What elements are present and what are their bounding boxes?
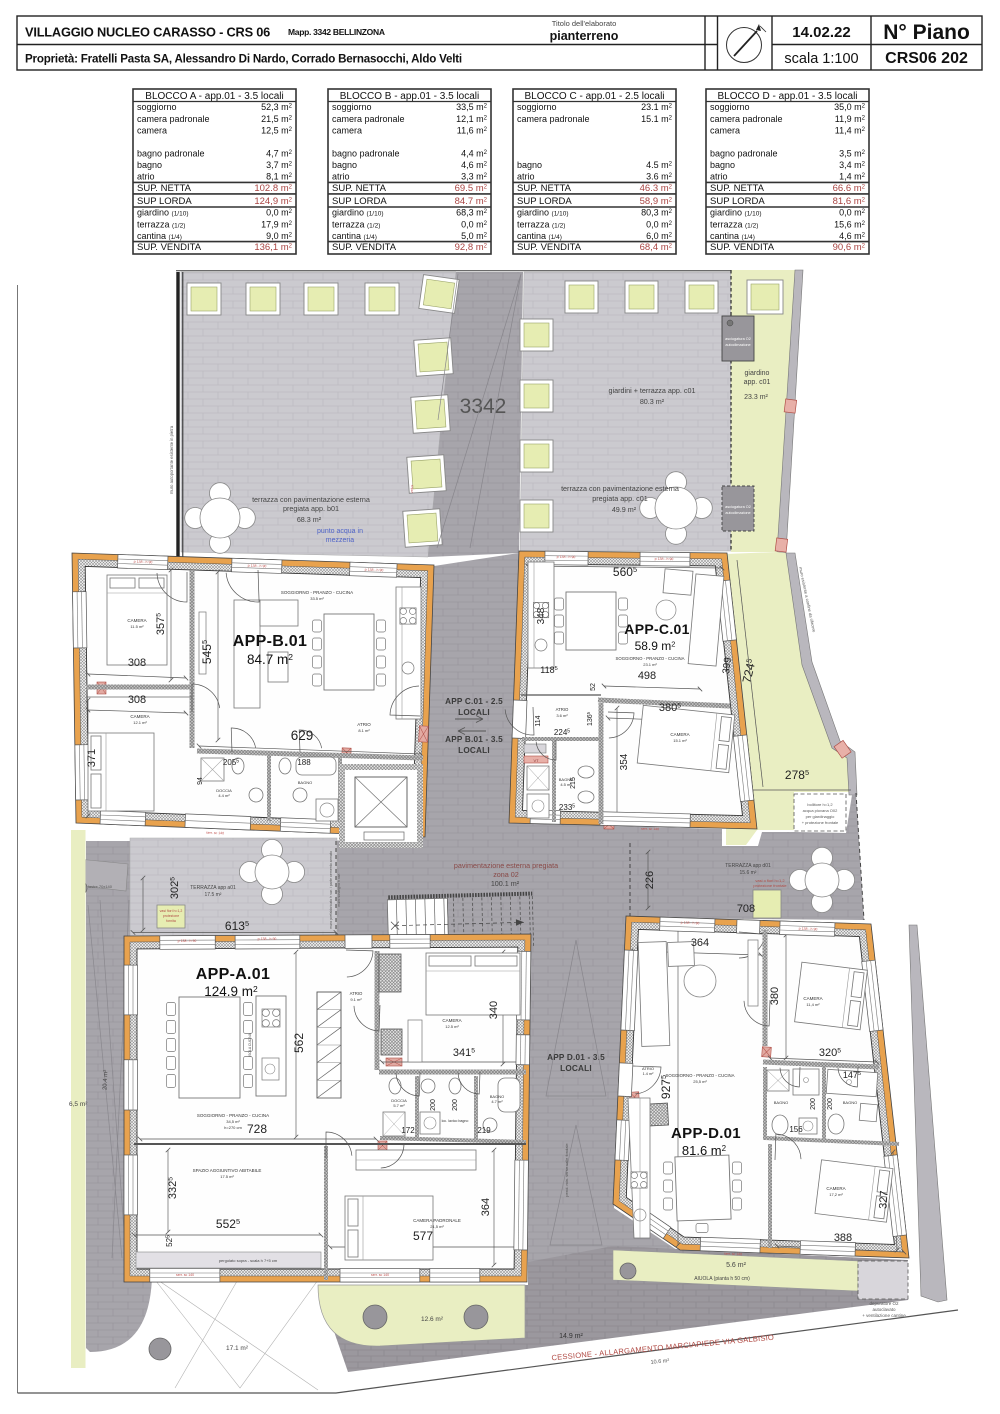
svg-text:SUP. VENDITA: SUP. VENDITA	[710, 242, 775, 253]
svg-text:terrazza con pavimentazione es: terrazza con pavimentazione esterna	[561, 484, 679, 493]
svg-text:Mapp. 3342 BELLINZONA: Mapp. 3342 BELLINZONA	[288, 27, 385, 37]
svg-text:90,6 m2: 90,6 m2	[833, 242, 866, 253]
svg-text:23.3 m²: 23.3 m²	[744, 394, 768, 401]
svg-text:p 138 - h 90: p 138 - h 90	[134, 560, 153, 565]
svg-text:114: 114	[535, 715, 542, 726]
svg-text:camera: camera	[710, 125, 740, 135]
svg-text:308: 308	[128, 657, 146, 669]
svg-text:81,6 m2: 81,6 m2	[833, 196, 866, 207]
svg-text:h=270 cm: h=270 cm	[224, 1125, 242, 1130]
svg-text:N° Piano: N° Piano	[883, 21, 970, 44]
svg-text:SUP LORDA: SUP LORDA	[137, 196, 192, 207]
svg-text:20.4 m²: 20.4 m²	[102, 1070, 109, 1091]
svg-text:pregiata app. b01: pregiata app. b01	[283, 504, 339, 513]
svg-text:lastre 70x140: lastre 70x140	[88, 884, 113, 889]
svg-text:49.9 m²: 49.9 m²	[612, 505, 637, 514]
svg-text:69.5 m2: 69.5 m2	[455, 183, 488, 194]
svg-text:soggiorno: soggiorno	[332, 102, 372, 112]
svg-text:11,6 m2: 11,6 m2	[457, 125, 488, 135]
svg-text:p 138 - h 90: p 138 - h 90	[681, 921, 700, 926]
svg-text:protezione frontale: protezione frontale	[753, 883, 787, 888]
svg-text:708: 708	[737, 903, 755, 915]
svg-text:21,5 m2: 21,5 m2	[261, 114, 293, 124]
svg-text:84.7 m2: 84.7 m2	[247, 652, 293, 667]
svg-text:VT: VT	[533, 758, 539, 763]
svg-text:58,9 m2: 58,9 m2	[640, 196, 673, 207]
svg-text:BLOCCO C - app.01 - 2.5 locali: BLOCCO C - app.01 - 2.5 locali	[524, 91, 664, 102]
svg-text:autoclimazione: autoclimazione	[725, 343, 750, 347]
svg-text:camera: camera	[137, 125, 167, 135]
svg-text:depuratore O2: depuratore O2	[869, 1301, 899, 1306]
svg-text:14.9 m²: 14.9 m²	[559, 1333, 583, 1340]
svg-text:camera: camera	[332, 125, 362, 135]
svg-text:BLOCCO A - app.01 - 3.5 locali: BLOCCO A - app.01 - 3.5 locali	[145, 91, 283, 102]
svg-text:23.1 m2: 23.1 m2	[641, 102, 673, 112]
svg-text:SUP LORDA: SUP LORDA	[332, 196, 387, 207]
svg-text:APP B.01 - 3.5: APP B.01 - 3.5	[445, 735, 503, 744]
svg-text:354: 354	[619, 753, 630, 770]
svg-text:SOGGIORNO - PRANZO - CUCINA: SOGGIORNO - PRANZO - CUCINA	[197, 1113, 269, 1118]
svg-text:226: 226	[644, 871, 656, 889]
svg-text:p 138 - h 90: p 138 - h 90	[258, 937, 277, 941]
svg-text:15.1 m²: 15.1 m²	[673, 738, 687, 743]
svg-text:bagno: bagno	[332, 160, 357, 170]
svg-text:562: 562	[292, 1033, 306, 1053]
svg-text:BAGNO: BAGNO	[843, 1100, 857, 1105]
svg-text:CAMERA: CAMERA	[442, 1018, 461, 1023]
svg-text:52,3 m2: 52,3 m2	[261, 102, 293, 112]
svg-text:156: 156	[789, 1125, 803, 1134]
svg-text:25,5 m²: 25,5 m²	[693, 1079, 707, 1084]
svg-text:+ ventilazione cantine: + ventilazione cantine	[862, 1313, 906, 1318]
svg-text:728: 728	[247, 1122, 267, 1136]
svg-text:66.6 m2: 66.6 m2	[833, 183, 866, 194]
svg-text:371: 371	[86, 749, 98, 767]
svg-text:camera padronale: camera padronale	[332, 114, 405, 124]
svg-text:172: 172	[401, 1126, 415, 1135]
svg-text:pregiata app. c01: pregiata app. c01	[592, 494, 648, 503]
svg-text:giardino: giardino	[745, 370, 770, 377]
svg-text:autoclavato: autoclavato	[872, 1307, 896, 1312]
svg-text:soggiorno: soggiorno	[137, 102, 177, 112]
svg-text:SUP. NETTA: SUP. NETTA	[710, 183, 765, 194]
svg-text:577: 577	[413, 1229, 433, 1243]
svg-text:33,5 m2: 33,5 m2	[456, 102, 488, 112]
svg-text:380: 380	[769, 987, 781, 1005]
svg-text:atrio: atrio	[137, 172, 155, 182]
svg-text:327: 327	[877, 1190, 890, 1209]
svg-text:TERRAZZA app a01: TERRAZZA app a01	[190, 885, 236, 891]
svg-text:serr. sc 140: serr. sc 140	[206, 831, 224, 836]
svg-text:33.5 m²: 33.5 m²	[310, 596, 324, 601]
svg-text:SUP. NETTA: SUP. NETTA	[332, 183, 387, 194]
svg-text:acqua piovana O02: acqua piovana O02	[803, 808, 838, 813]
svg-text:124.9 m2: 124.9 m2	[204, 984, 258, 999]
svg-text:15,6 m2: 15,6 m2	[834, 219, 866, 229]
svg-text:188: 188	[297, 758, 311, 767]
svg-text:11.5 m²: 11.5 m²	[130, 624, 144, 629]
svg-text:SUP LORDA: SUP LORDA	[517, 196, 572, 207]
svg-text:58.9 m2: 58.9 m2	[635, 639, 676, 653]
svg-text:SOGGIORNO - PRANZO - CUCINA: SOGGIORNO - PRANZO - CUCINA	[666, 1073, 735, 1078]
svg-text:CAMERA: CAMERA	[803, 996, 822, 1001]
svg-text:pend. min. verso valle fondale: pend. min. verso valle fondale	[564, 1143, 569, 1197]
svg-text:bagno padronale: bagno padronale	[137, 148, 205, 158]
svg-text:pianterreno: pianterreno	[550, 29, 619, 43]
svg-text:81.6 m2: 81.6 m2	[682, 1143, 727, 1158]
svg-text:serr. sc 140: serr. sc 140	[724, 1252, 742, 1257]
svg-text:200: 200	[430, 1099, 437, 1111]
svg-text:15.1 m2: 15.1 m2	[641, 114, 673, 124]
svg-text:SUP. VENDITA: SUP. VENDITA	[332, 242, 397, 253]
svg-text:VILLAGGIO NUCLEO CARASSO - CRS: VILLAGGIO NUCLEO CARASSO - CRS 06	[25, 25, 270, 40]
svg-text:136,1 m2: 136,1 m2	[254, 242, 292, 253]
svg-text:LOCALI: LOCALI	[458, 746, 490, 755]
svg-text:3.6 m²: 3.6 m²	[556, 713, 568, 718]
svg-text:SPAZIO AGGIUNTIVO ABITABILE: SPAZIO AGGIUNTIVO ABITABILE	[193, 1168, 262, 1173]
svg-text:APP D.01 - 3.5: APP D.01 - 3.5	[547, 1053, 605, 1062]
svg-text:soggiorno: soggiorno	[517, 102, 557, 112]
svg-text:84.7 m2: 84.7 m2	[455, 196, 488, 207]
svg-text:CAMERA: CAMERA	[670, 732, 689, 737]
svg-text:bagno: bagno	[710, 160, 735, 170]
svg-text:APP C.01 - 2.5: APP C.01 - 2.5	[445, 697, 503, 706]
svg-text:11,4 m²: 11,4 m²	[806, 1002, 820, 1007]
svg-text:CAMERA: CAMERA	[127, 618, 146, 623]
svg-text:camera padronale: camera padronale	[517, 114, 590, 124]
svg-text:388: 388	[834, 1232, 852, 1244]
svg-text:bollitore h=1,2: bollitore h=1,2	[807, 802, 833, 807]
svg-text:SOGGIORNO - PRANZO - CUCINA: SOGGIORNO - PRANZO - CUCINA	[281, 590, 353, 595]
svg-text:pergolato sopra - scala h 7+5: pergolato sopra - scala h 7+5 cm	[219, 1258, 278, 1263]
svg-text:mezzeria: mezzeria	[326, 537, 355, 544]
svg-text:17,2 m²: 17,2 m²	[829, 1192, 843, 1197]
svg-text:SUP. VENDITA: SUP. VENDITA	[137, 242, 202, 253]
svg-text:velux: velux	[410, 485, 414, 494]
svg-text:308: 308	[128, 694, 146, 706]
svg-text:94: 94	[197, 777, 204, 785]
svg-text:9.1 m²: 9.1 m²	[350, 997, 362, 1002]
svg-text:6,5 m²: 6,5 m²	[69, 1101, 88, 1108]
svg-text:200: 200	[827, 1098, 834, 1110]
svg-text:399: 399	[721, 656, 734, 674]
svg-text:SUP. VENDITA: SUP. VENDITA	[517, 242, 582, 253]
svg-text:17,9 m2: 17,9 m2	[261, 219, 293, 229]
svg-text:app. c01: app. c01	[744, 379, 771, 386]
svg-text:pavimentazione esterna pregiat: pavimentazione esterna pregiata	[454, 861, 558, 870]
svg-text:serr. sc 140: serr. sc 140	[641, 827, 659, 831]
svg-text:ISOLA CUCINA: ISOLA CUCINA	[248, 1032, 252, 1056]
svg-text:215: 215	[570, 777, 577, 789]
svg-text:SOGGIORNO - PRANZO - CUCINA: SOGGIORNO - PRANZO - CUCINA	[616, 656, 685, 661]
svg-text:bagno: bagno	[137, 160, 162, 170]
svg-text:atrio: atrio	[517, 172, 535, 182]
svg-text:SUP. NETTA: SUP. NETTA	[517, 183, 572, 194]
svg-text:12,1 m2: 12,1 m2	[456, 114, 488, 124]
svg-text:serr. sc 140: serr. sc 140	[371, 1273, 389, 1277]
svg-text:BLOCCO D - app.01 - 3.5 locali: BLOCCO D - app.01 - 3.5 locali	[717, 91, 857, 102]
svg-text:atrio: atrio	[332, 172, 350, 182]
svg-text:APP-D.01: APP-D.01	[671, 1125, 741, 1142]
svg-text:11,9 m2: 11,9 m2	[835, 114, 866, 124]
svg-text:SUP. NETTA: SUP. NETTA	[137, 183, 192, 194]
svg-text:+ protezione frontale: + protezione frontale	[802, 820, 839, 825]
svg-text:12.5 m²: 12.5 m²	[445, 1024, 459, 1029]
svg-text:p 138 - h 90: p 138 - h 90	[178, 939, 197, 943]
svg-text:68,4 m2: 68,4 m2	[640, 242, 673, 253]
svg-text:soggiorno: soggiorno	[710, 102, 750, 112]
svg-text:12.6 m²: 12.6 m²	[421, 1316, 444, 1323]
svg-text:5.7 m²: 5.7 m²	[393, 1103, 405, 1108]
svg-text:p 138 - h 90: p 138 - h 90	[655, 557, 674, 561]
svg-text:CAMERA: CAMERA	[826, 1186, 845, 1191]
svg-text:17.1 m²: 17.1 m²	[226, 1345, 249, 1352]
svg-text:zona 02: zona 02	[493, 870, 519, 879]
svg-text:340: 340	[488, 1001, 500, 1019]
svg-text:scala 1:100: scala 1:100	[784, 51, 858, 67]
svg-text:12,5 m2: 12,5 m2	[261, 125, 293, 135]
svg-text:bagno padronale: bagno padronale	[710, 148, 778, 158]
svg-text:80,3 m2: 80,3 m2	[641, 208, 673, 218]
svg-text:364: 364	[480, 1198, 492, 1216]
svg-text:muro autoportante esistente in: muro autoportante esistente in pietra	[169, 425, 174, 494]
svg-text:CRS06 202: CRS06 202	[885, 50, 968, 67]
svg-text:atrio: atrio	[710, 172, 728, 182]
svg-text:102.8 m2: 102.8 m2	[254, 183, 292, 194]
svg-text:92,8 m2: 92,8 m2	[455, 242, 488, 253]
svg-text:364: 364	[691, 937, 709, 949]
svg-text:5.6 m²: 5.6 m²	[726, 1262, 747, 1269]
svg-text:p 138 - h 90: p 138 - h 90	[799, 927, 818, 932]
svg-text:CAMERA PADRONALE: CAMERA PADRONALE	[413, 1218, 461, 1223]
svg-text:bagno: bagno	[517, 160, 542, 170]
svg-text:219: 219	[477, 1126, 491, 1135]
svg-text:200: 200	[810, 1098, 817, 1110]
svg-text:serr. sc 140: serr. sc 140	[176, 1273, 194, 1277]
svg-text:bagno padronale: bagno padronale	[332, 148, 400, 158]
svg-text:BAGNO: BAGNO	[774, 1100, 788, 1105]
svg-text:124,9 m2: 124,9 m2	[254, 196, 292, 207]
svg-text:protezione: protezione	[163, 914, 179, 918]
svg-text:23.1 m²: 23.1 m²	[643, 662, 657, 667]
svg-text:APP-C.01: APP-C.01	[624, 621, 689, 637]
svg-text:vasi fiori h=1,2: vasi fiori h=1,2	[160, 909, 183, 913]
svg-text:100.1 m²: 100.1 m²	[491, 879, 520, 888]
svg-text:Titolo dell'elaborato: Titolo dell'elaborato	[552, 19, 617, 28]
svg-text:46.3 m2: 46.3 m2	[640, 183, 673, 194]
svg-text:TERRAZZA app d01: TERRAZZA app d01	[725, 863, 771, 869]
svg-text:11,4 m2: 11,4 m2	[835, 125, 866, 135]
svg-text:BAGNO: BAGNO	[298, 780, 312, 785]
svg-text:629: 629	[291, 728, 314, 743]
svg-text:15.6 m²: 15.6 m²	[740, 870, 757, 876]
svg-text:12.1 m²: 12.1 m²	[133, 720, 147, 725]
svg-text:asciugatura O2: asciugatura O2	[725, 505, 751, 509]
svg-text:camera padronale: camera padronale	[137, 114, 210, 124]
svg-text:ATRIO: ATRIO	[357, 722, 371, 727]
svg-text:p 138 - h 90: p 138 - h 90	[248, 564, 267, 569]
svg-text:autoclimazione: autoclimazione	[725, 511, 750, 515]
svg-text:8.1 m²: 8.1 m²	[358, 728, 370, 733]
svg-text:APP-A.01: APP-A.01	[196, 966, 270, 983]
svg-text:68.3 m²: 68.3 m²	[297, 515, 322, 524]
svg-text:loc. lavico bagno: loc. lavico bagno	[442, 1119, 469, 1123]
svg-text:LOCALI: LOCALI	[458, 708, 490, 717]
svg-text:ATRIO: ATRIO	[642, 1066, 654, 1071]
svg-text:giardini + terrazza app. c01: giardini + terrazza app. c01	[609, 386, 696, 395]
svg-text:camera padronale: camera padronale	[710, 114, 783, 124]
svg-text:1.4 m²: 1.4 m²	[643, 1072, 654, 1076]
svg-text:LOCALI: LOCALI	[560, 1064, 592, 1073]
svg-text:4.4 m²: 4.4 m²	[218, 793, 230, 798]
svg-text:14.02.22: 14.02.22	[792, 24, 850, 41]
svg-text:200: 200	[452, 1099, 459, 1111]
svg-text:fornita: fornita	[166, 919, 176, 923]
svg-text:muro sostegno h var.: muro sostegno h var.	[337, 873, 341, 907]
svg-text:17.5 m²: 17.5 m²	[205, 892, 222, 898]
svg-text:4.7 m²: 4.7 m²	[491, 1099, 503, 1104]
svg-text:muro prefabbricato h var. i pa: muro prefabbricato h var. i parte cement…	[329, 851, 333, 929]
svg-text:per giardinaggio: per giardinaggio	[806, 814, 835, 819]
svg-text:BLOCCO B - app.01 - 3.5 locali: BLOCCO B - app.01 - 3.5 locali	[340, 91, 480, 102]
svg-text:ATRIO: ATRIO	[350, 991, 363, 996]
svg-text:terrazza con pavimentazione es: terrazza con pavimentazione esterna	[252, 495, 370, 504]
svg-text:80.3 m²: 80.3 m²	[640, 397, 665, 406]
svg-text:APP-B.01: APP-B.01	[233, 633, 307, 650]
svg-text:AIUOLA (pianta h 50 cm): AIUOLA (pianta h 50 cm)	[694, 1276, 750, 1282]
svg-text:498: 498	[638, 670, 656, 682]
svg-text:CAMERA: CAMERA	[130, 714, 149, 719]
svg-text:p 138 - h 90: p 138 - h 90	[557, 555, 576, 559]
svg-text:34,5 m²: 34,5 m²	[226, 1119, 240, 1124]
svg-text:52: 52	[590, 683, 597, 691]
svg-text:ATRIO: ATRIO	[556, 707, 569, 712]
svg-text:Proprietà: Fratelli Pasta SA,: Proprietà: Fratelli Pasta SA, Alessandro…	[25, 53, 462, 66]
svg-text:68,3 m2: 68,3 m2	[456, 208, 488, 218]
svg-text:punto acqua in: punto acqua in	[317, 528, 363, 535]
svg-text:SUP LORDA: SUP LORDA	[710, 196, 765, 207]
svg-text:348: 348	[536, 607, 547, 624]
svg-text:asciugatura O2: asciugatura O2	[725, 337, 751, 341]
svg-text:17.5 m²: 17.5 m²	[220, 1174, 234, 1179]
svg-text:p 138 - h 90: p 138 - h 90	[365, 568, 384, 573]
svg-text:35,0 m2: 35,0 m2	[834, 102, 866, 112]
